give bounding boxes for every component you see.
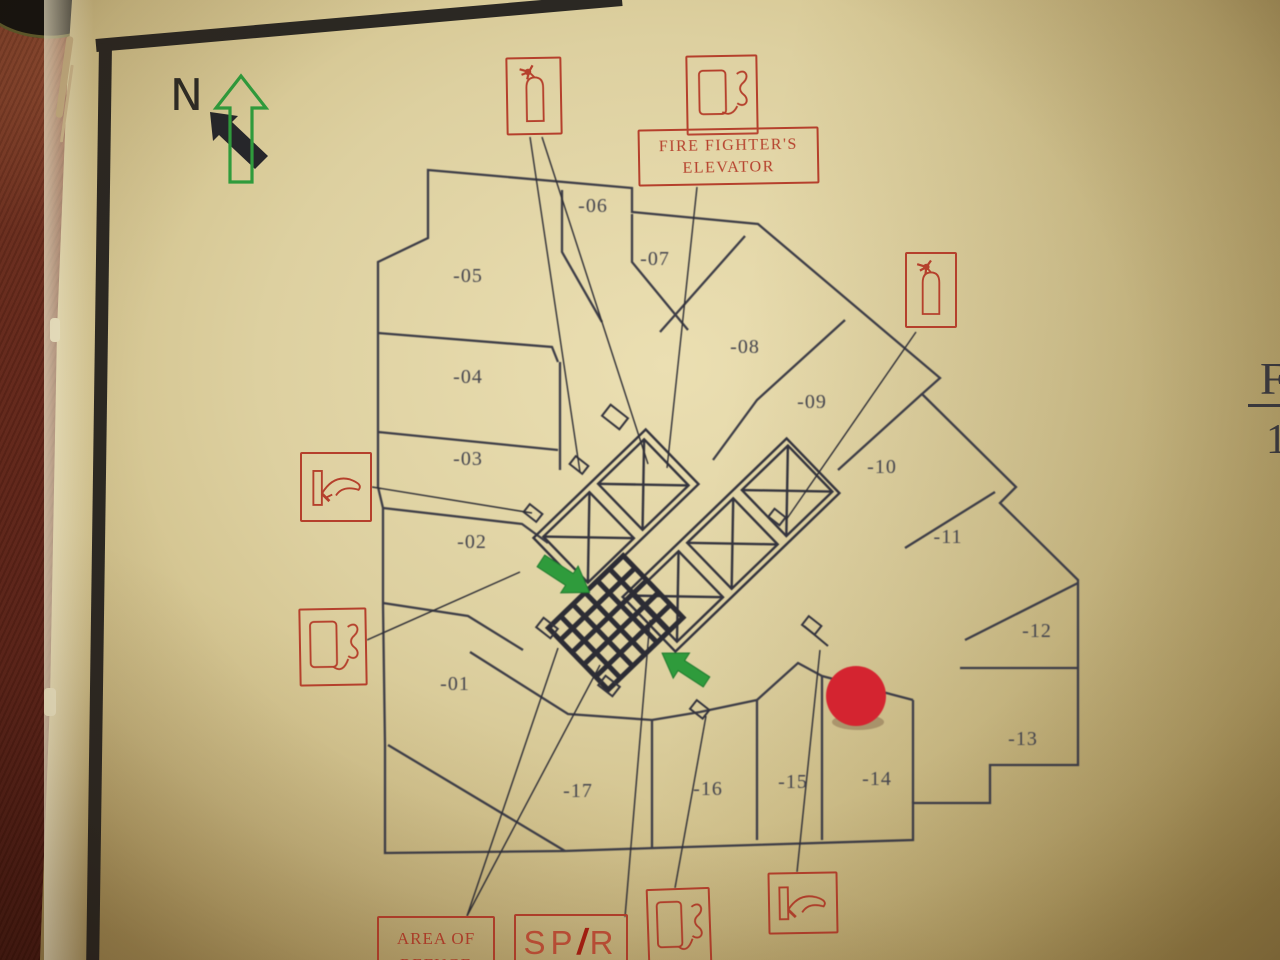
- room-label-17: -17: [563, 780, 593, 802]
- room-label-16: -16: [693, 778, 723, 800]
- room-label-06: -06: [578, 195, 608, 217]
- room-label-13: -13: [1008, 728, 1038, 750]
- fire-extinguisher-icon: [905, 252, 957, 328]
- telephone-icon: [646, 887, 713, 960]
- room-label-02: -02: [457, 531, 487, 553]
- fire-extinguisher-icon: [505, 57, 562, 136]
- room-label-09: -09: [797, 391, 827, 413]
- photo-of-evacuation-plan: -01-02-03-04-05-06-07-08-09-10-11-12-13-…: [0, 0, 1280, 960]
- room-label-08: -08: [730, 336, 760, 358]
- fire-fighters-elevator-phone-icon: [685, 54, 758, 135]
- area-of-refuge-line1: AREA OF: [379, 926, 493, 952]
- building-walls: [378, 170, 1078, 853]
- sprinkler-riser-label: SP / R: [514, 914, 628, 960]
- fire-fighters-elevator-label: FIRE FIGHTER'S ELEVATOR: [638, 126, 820, 186]
- room-label-12: -12: [1022, 620, 1052, 642]
- partial-heading-bottom: 1: [1266, 416, 1280, 464]
- room-label-10: -10: [867, 456, 897, 478]
- room-label-11: -11: [934, 526, 963, 548]
- room-label-01: -01: [440, 673, 470, 695]
- room-label-03: -03: [453, 448, 483, 470]
- fire-hose-icon: [767, 871, 838, 934]
- spr-text-sp: SP: [524, 916, 578, 960]
- area-of-refuge-label: AREA OF REFUGE: [377, 916, 495, 960]
- room-label-07: -07: [640, 248, 670, 270]
- partial-heading: F 1: [1240, 352, 1280, 482]
- partial-heading-top: F: [1260, 352, 1280, 405]
- northwest-arrow-icon: [210, 112, 268, 169]
- fire-fighters-elevator-line2: ELEVATOR: [682, 156, 775, 179]
- spr-text-r: R: [590, 916, 619, 960]
- room-label-14: -14: [862, 768, 892, 790]
- fire-fighters-elevator-line1: FIRE FIGHTER'S: [659, 134, 798, 158]
- room-number-labels: -01-02-03-04-05-06-07-08-09-10-11-12-13-…: [440, 195, 1052, 802]
- fire-hose-icon: [300, 452, 372, 522]
- room-label-05: -05: [453, 265, 483, 287]
- room-label-15: -15: [778, 771, 808, 793]
- exit-arrow-northwest: [654, 640, 715, 694]
- area-of-refuge-line2: REFUGE: [379, 952, 493, 960]
- room-label-04: -04: [453, 366, 483, 388]
- telephone-icon: [298, 607, 367, 686]
- you-are-here-dot: [826, 666, 886, 726]
- north-compass: N: [168, 64, 298, 194]
- partial-heading-underline: [1248, 404, 1280, 407]
